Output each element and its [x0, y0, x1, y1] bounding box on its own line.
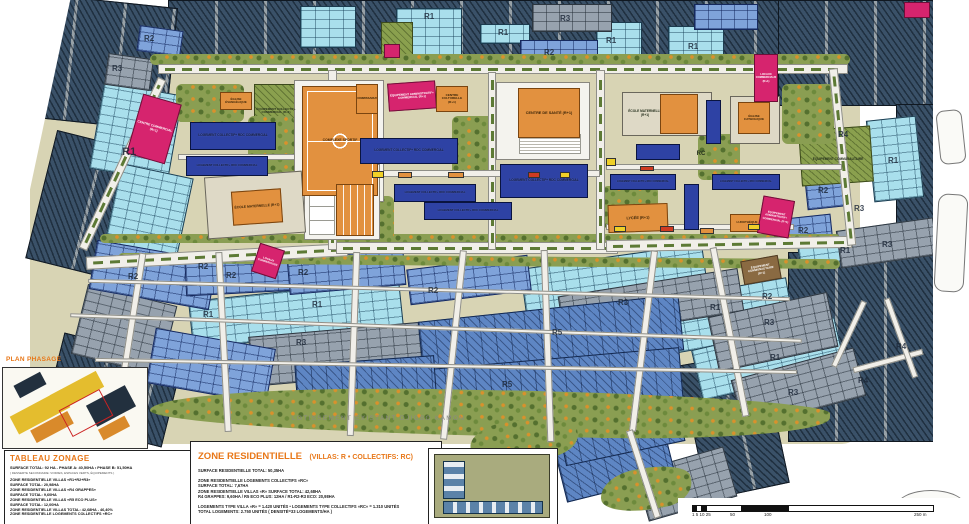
zone-label-R1: R1	[312, 300, 340, 312]
zone-residentielle-panel: ZONE RESIDENTIELLE (VILLAS: R • COLLECTI…	[190, 441, 442, 524]
detail-plot	[434, 454, 550, 518]
scale-segment	[741, 506, 789, 511]
plan-phasage-inset-map	[2, 367, 148, 449]
equipement-communautaire-est-label: ÉQUIPEMENT COMMUNAUTAIRE	[810, 144, 866, 176]
zone-label-R2: R2	[226, 271, 254, 283]
detail-building-row	[443, 501, 543, 514]
existing-area-label: LOTISSEMENT EXISTANT DJIGBO KAMON	[292, 415, 465, 422]
centre-de-sante: CENTRE DE SANTÉ (R+1)	[518, 88, 580, 138]
scale-label: 50	[730, 512, 735, 517]
tennis-court	[336, 184, 374, 236]
tableau-zonage-panel: TABLEAU ZONAGE SURFACE TOTAL: 92 HA - PH…	[4, 450, 198, 524]
detail-building-vertical	[443, 461, 465, 499]
inset-phase-block	[13, 372, 46, 398]
zone-label-R2: R2	[128, 272, 156, 284]
parcel-blue	[694, 4, 758, 30]
panel-line: ZONE RESIDENTIELLE LOGEMENTS COLLECTIFS …	[10, 512, 192, 517]
ecole-maternelle-ouest: ÉCOLE MATERNELLE (R+1)	[231, 188, 283, 225]
logement-collectif-10	[706, 100, 721, 144]
market-kiosk	[660, 226, 674, 232]
zone-label-R5: R5	[552, 328, 580, 340]
zone-label-R1: R1	[840, 246, 868, 258]
zone-residentielle-title: ZONE RESIDENTIELLE	[198, 451, 302, 462]
ecole-maternelle-est	[660, 94, 698, 134]
logement-collectif-8: LOGEMENT COLLECTIF+ RDC COMMERCIAL	[610, 174, 676, 190]
logement-collectif-9: LOGEMENT COLLECTIF+ RDC COMMERCIAL	[712, 174, 780, 190]
eglise-evangelique: ÉGLISE ÉVANGÉLIQUE	[220, 92, 252, 110]
road	[596, 70, 605, 250]
zone-label-R2: R2	[198, 262, 226, 274]
zone-label-R2: R2	[798, 226, 826, 238]
rc-zone-label: RC	[692, 148, 710, 160]
market-kiosk	[748, 224, 760, 230]
market-kiosk	[640, 166, 654, 171]
zone-label-R3: R3	[112, 64, 140, 76]
zone-label-R1: R1	[770, 353, 798, 365]
parcel-cyan	[300, 6, 356, 48]
zone-label-R4: R4	[858, 376, 886, 388]
market-kiosk	[700, 228, 714, 234]
plan-phasage-label: PLAN PHASAGE	[6, 356, 61, 363]
market-kiosk	[606, 158, 616, 166]
urban-master-plan-document: COMPLEXE SPORTIFCENTRE COMMERCIAL (R+1)É…	[0, 0, 969, 524]
market-kiosk	[448, 172, 464, 178]
zone-label-R2: R2	[144, 34, 172, 46]
zone-label-R1: R1	[203, 310, 231, 322]
vacant-parcel-outline	[935, 109, 967, 165]
zone-label-R2: R2	[818, 186, 846, 198]
tableau-zonage-lines: ZONE RESIDENTIELLE VILLAS «R1+R2+R3»SURF…	[10, 478, 192, 517]
vacant-parcel-outline	[933, 193, 968, 292]
zone-residentielle-lines: SURFACE RESIDENTIELLE TOTAL: 50,35HAZONE…	[198, 468, 434, 515]
zone-label-R1: R1	[888, 156, 916, 168]
surface-total-line: SURFACE TOTAL: 92 HA - PHASE A: 40,50HA …	[10, 465, 192, 470]
zone-label-R3: R3	[882, 240, 910, 252]
market-kiosk	[560, 172, 570, 178]
logement-collectif-6: LOGEMENT COLLECTIF+ RDC COMMERCIAL	[500, 164, 588, 198]
zone-label-R1: R1	[688, 42, 716, 54]
scale-segment	[789, 506, 933, 511]
logement-collectif-5: LOGEMENT COLLECTIF+ RDC COMMERCIAL	[424, 202, 512, 220]
scale-segment	[717, 506, 741, 511]
zone-residentielle-subtitle: (VILLAS: R • COLLECTIFS: RC)	[309, 454, 413, 461]
zone-label-R3: R3	[296, 338, 324, 350]
green-space	[782, 84, 834, 144]
zone-label-R1: R1	[122, 146, 150, 158]
locaux-commerciaux-nord: LOCAUX COMMERCIAUX (R+1)	[754, 54, 778, 102]
logement-collectif-4: LOGEMENT COLLECTIF+ RDC COMMERCIAL	[394, 184, 476, 202]
scale-label: 1 5 10 25	[692, 512, 711, 517]
centre-culturelle: CENTRE CULTURELLE (R+1)	[436, 86, 468, 112]
block-detail-diagram	[428, 448, 558, 524]
scale-bar-segments	[692, 505, 934, 512]
logement-collectif-2: LOGEMENT COLLECTIF+ RDC COMMERCIAL	[186, 156, 268, 176]
logement-collectif-7	[636, 144, 680, 160]
zone-label-R1: R1	[606, 36, 634, 48]
market-kiosk	[528, 172, 540, 178]
equipement-administratif-ouest: ÉQUIPEMENT ADMINISTRATIF+ COMMERCIAL (R+…	[387, 80, 437, 111]
zone-label-R4: R4	[896, 342, 924, 354]
scale-label: 100	[764, 512, 772, 517]
scale-bar: 1 5 10 2550100250 m	[692, 505, 932, 521]
scale-label: 250 m	[914, 512, 927, 517]
zone-label-R1: R1	[424, 12, 452, 24]
surface-note: ( DESSERTE SECONDAIRE: VOIRIES, ESPACES …	[10, 471, 192, 475]
logement-collectif-11	[684, 184, 699, 230]
zone-label-R3: R3	[788, 388, 816, 400]
zone-label-R3: R3	[618, 298, 646, 310]
petit-equipement-nord-est	[904, 2, 930, 18]
logement-collectif-3: LOGEMENT COLLECTIF+ RDC COMMERCIAL	[360, 138, 458, 164]
equipement-administratif-est: ÉQUIPEMENT ADMINISTRATIF+ COMMERCIAL (R+…	[757, 196, 795, 239]
zone-label-R3: R3	[560, 14, 588, 26]
scale-segment	[707, 506, 717, 511]
zone-label-R3: R3	[854, 204, 882, 216]
locaux-commerciaux-haut	[384, 44, 400, 58]
market-kiosk	[372, 171, 384, 178]
zone-label-R2: R2	[298, 268, 326, 280]
eglise-catholique: ÉGLISE CATHOLIQUE	[738, 102, 770, 134]
road	[336, 242, 618, 254]
zone-label-R3: R3	[764, 318, 792, 330]
commissariat: COMMISSARIAT	[356, 84, 378, 114]
market-kiosk	[614, 226, 626, 232]
tableau-zonage-title: TABLEAU ZONAGE	[10, 454, 192, 463]
zone-label-R5: R5	[502, 380, 530, 392]
zone-label-R2: R2	[544, 48, 572, 60]
zone-label-R2: R2	[762, 292, 790, 304]
road	[158, 64, 848, 74]
zone-label-R1: R1	[710, 303, 738, 315]
logement-collectif-1: LOGEMENT COLLECTIF+ RDC COMMERCIAL	[190, 122, 276, 150]
panel-line: TOTAL LOGEMENTS: 2.750 UNITÉS ( DENSITÉ=…	[198, 509, 434, 515]
zone-label-R4: R4	[838, 130, 866, 142]
road	[488, 72, 496, 250]
zone-label-R1: R1	[498, 28, 526, 40]
master-plan-map: COMPLEXE SPORTIFCENTRE COMMERCIAL (R+1)É…	[0, 0, 969, 524]
market-kiosk	[398, 172, 412, 178]
zone-label-R2: R2	[428, 286, 456, 298]
